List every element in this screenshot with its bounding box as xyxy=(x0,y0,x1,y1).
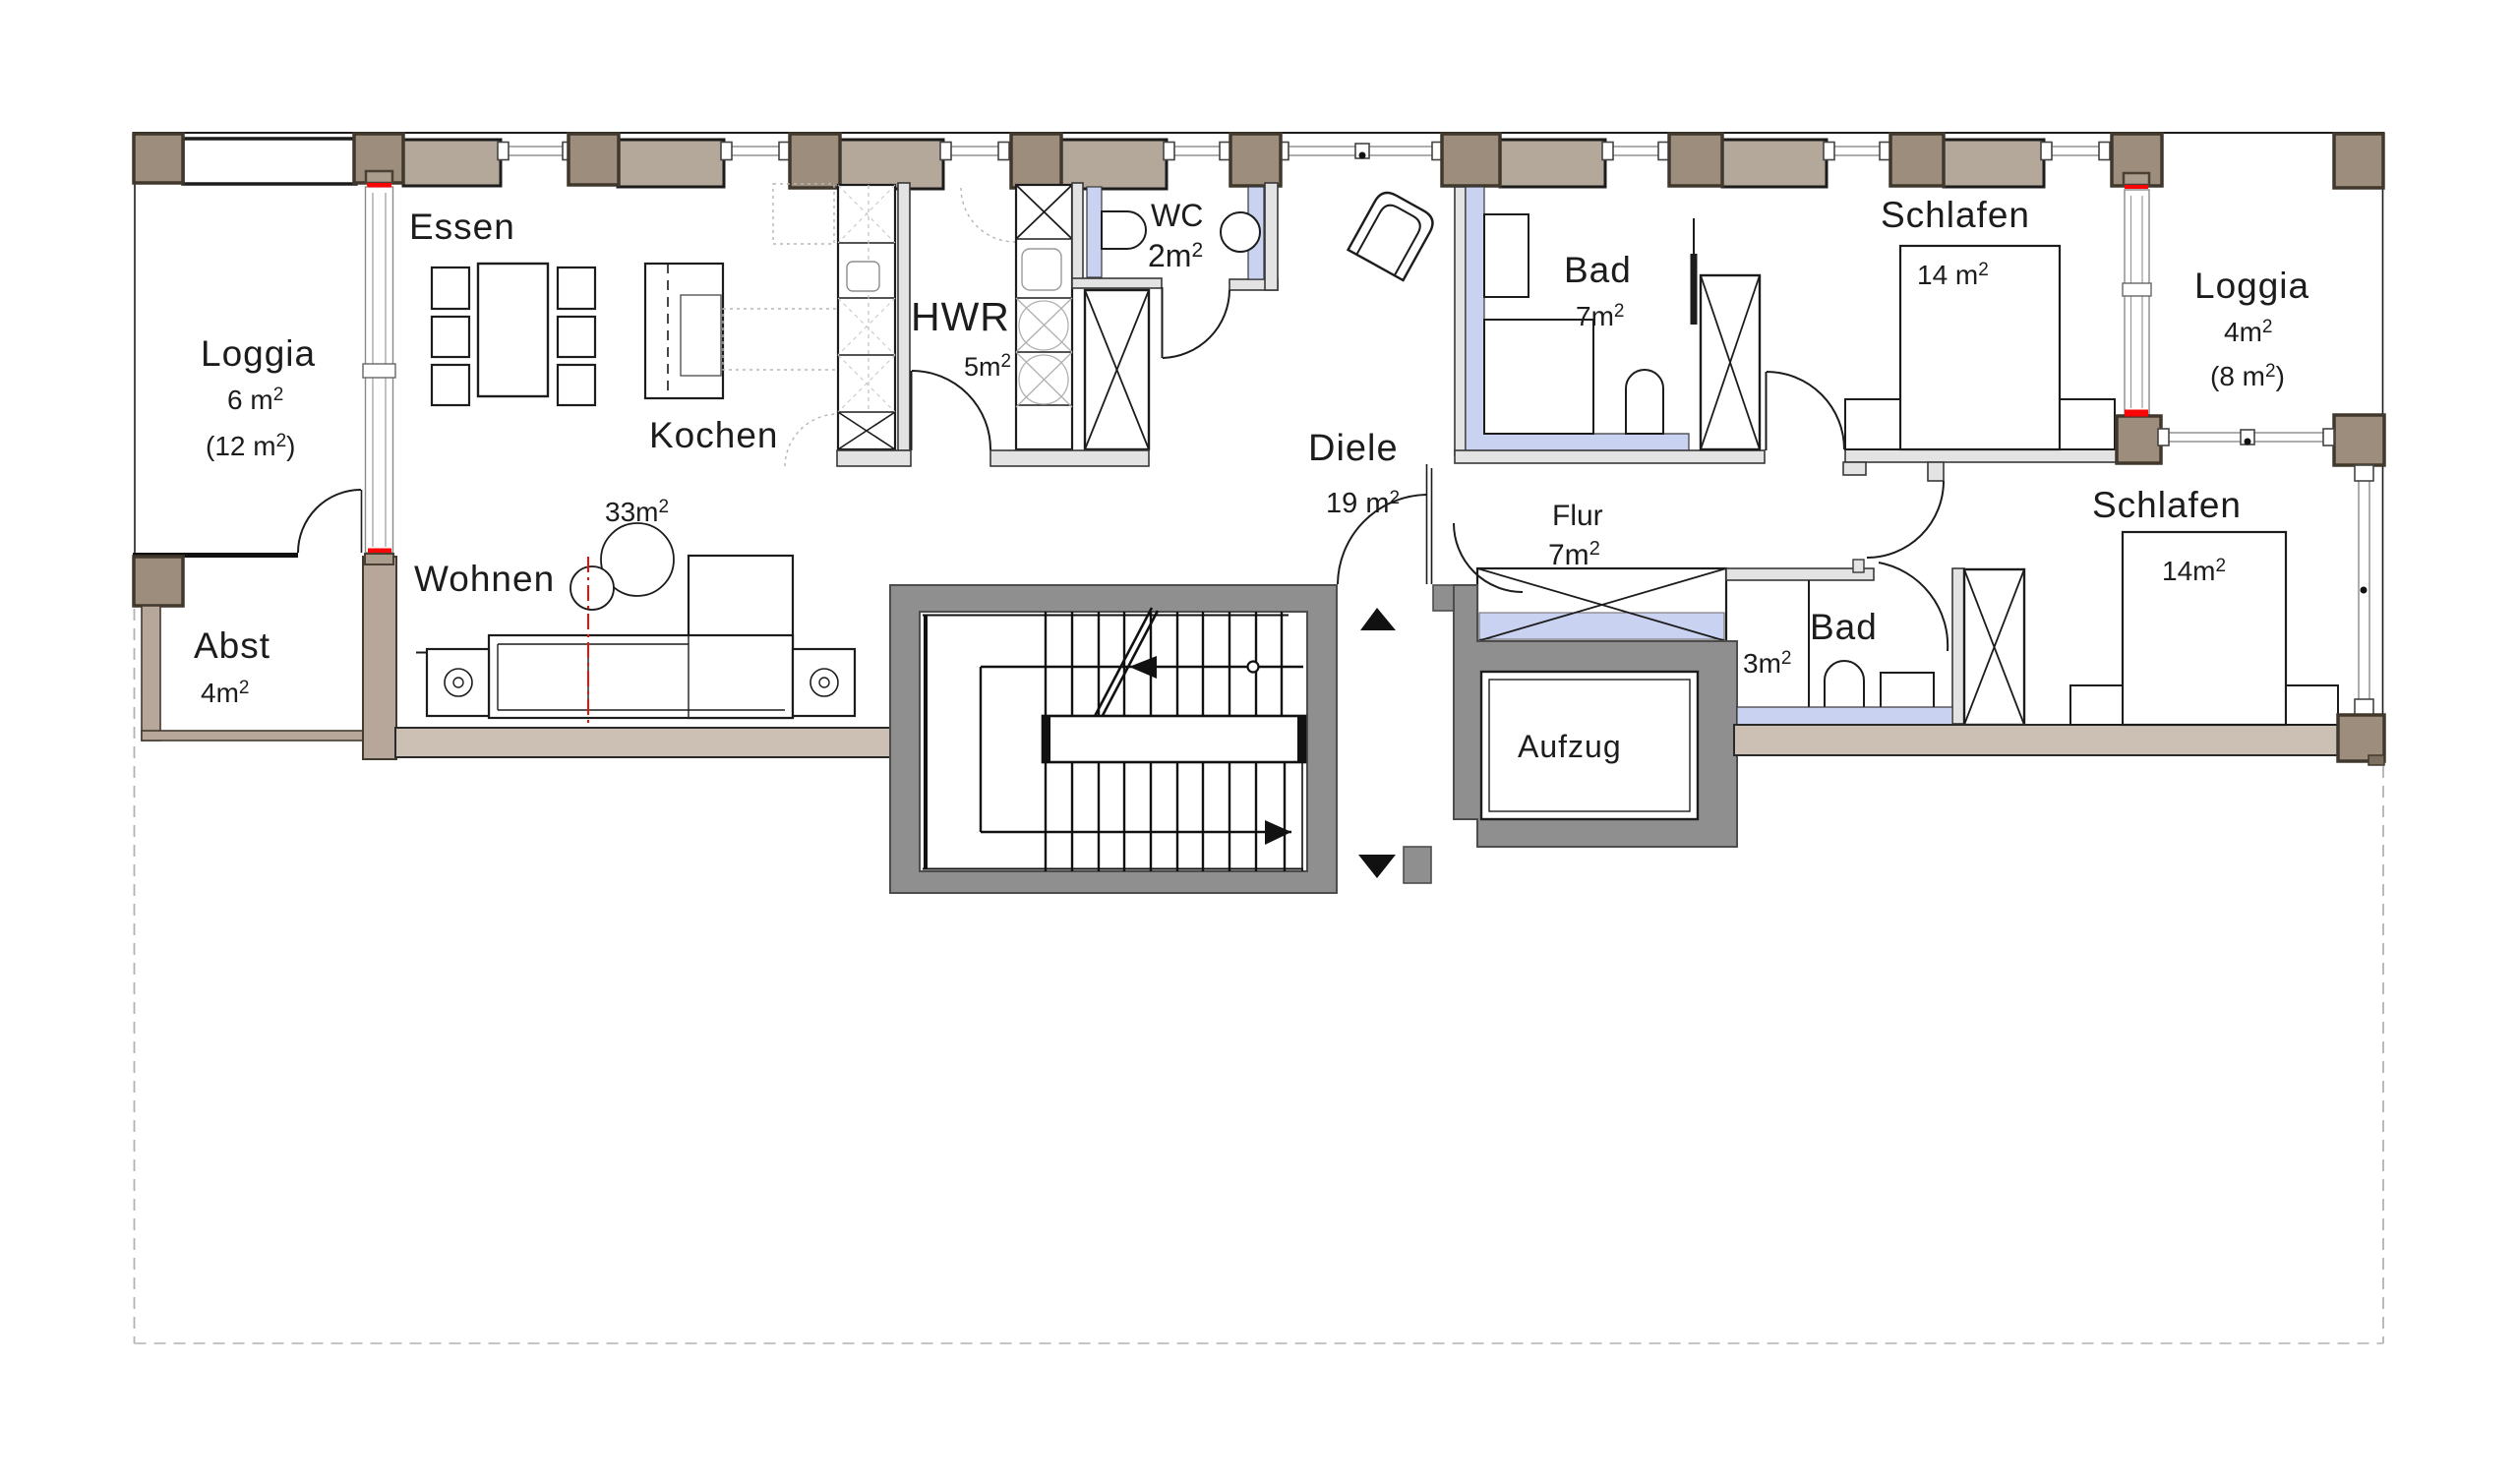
svg-text:Bad: Bad xyxy=(1810,607,1878,647)
svg-text:Bad: Bad xyxy=(1564,250,1632,290)
svg-text:Diele: Diele xyxy=(1308,428,1399,469)
svg-text:Aufzug: Aufzug xyxy=(1518,729,1622,764)
svg-text:14 m2: 14 m2 xyxy=(1917,260,1989,290)
svg-text:Loggia: Loggia xyxy=(2194,266,2309,306)
svg-text:Schlafen: Schlafen xyxy=(1881,195,2030,235)
svg-text:Kochen: Kochen xyxy=(649,415,779,455)
svg-text:Flur: Flur xyxy=(1552,500,1603,532)
svg-text:HWR: HWR xyxy=(911,294,1010,339)
svg-text:Abst: Abst xyxy=(194,625,270,666)
svg-text:Wohnen: Wohnen xyxy=(414,559,555,599)
svg-text:Loggia: Loggia xyxy=(201,333,316,374)
svg-text:Essen: Essen xyxy=(409,207,515,247)
svg-text:WC: WC xyxy=(1151,198,1203,233)
svg-text:Schlafen: Schlafen xyxy=(2092,485,2242,525)
